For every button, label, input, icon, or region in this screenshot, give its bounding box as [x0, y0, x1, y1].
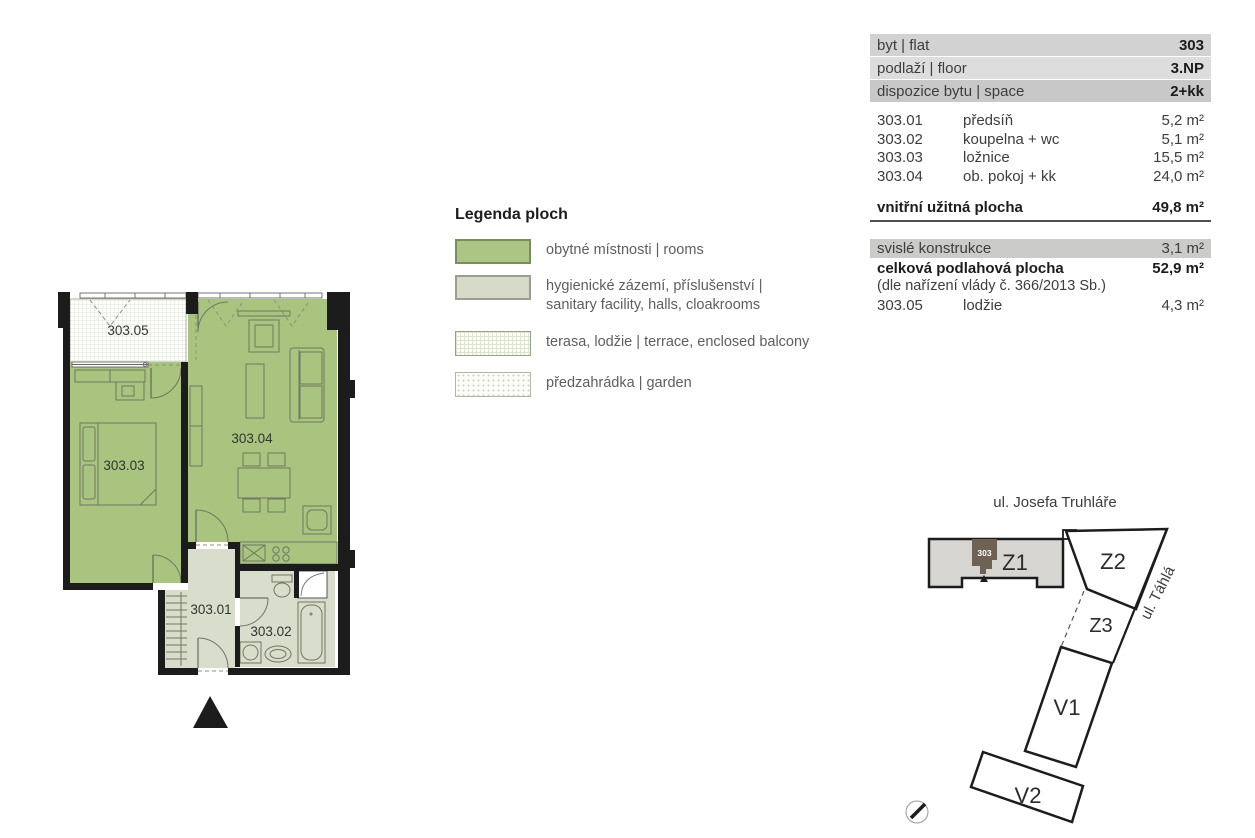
room-row: 303.04 ob. pokoj + kk 24,0 m²	[870, 168, 1211, 187]
row-vertical-constructions: svislé konstrukce 3,1 m²	[870, 239, 1211, 258]
row-floor: podlaží | floor 3.NP	[870, 57, 1211, 79]
floor-number: 3.NP	[1171, 60, 1204, 77]
north-arrow-icon	[193, 696, 228, 728]
floor-plan: 303.05 303.04 303.03 303.01 303.02	[50, 280, 370, 750]
legend-item-rooms: obytné místnosti | rooms	[455, 239, 845, 264]
layout-value: 2+kk	[1170, 83, 1204, 100]
flat-number: 303	[1179, 37, 1204, 54]
secondary-area-section: svislé konstrukce 3,1 m² celková podlaho…	[870, 239, 1211, 314]
building-z1: 303 Z1	[929, 530, 1076, 587]
legend: Legenda ploch obytné místnosti | rooms h…	[455, 206, 845, 408]
building-z1-label: Z1	[1002, 550, 1028, 575]
building-v2-label: V2	[1015, 783, 1042, 808]
building-v1: V1	[1025, 647, 1112, 767]
unit-303-label: 303	[977, 548, 991, 558]
room-row: 303.02 koupelna + wc 5,1 m²	[870, 131, 1211, 150]
label-303-02: 303.02	[250, 624, 291, 639]
label-303-03: 303.03	[103, 458, 144, 473]
legend-item-sanitary: hygienické zázemí, příslušenství | sanit…	[455, 275, 845, 315]
legend-title: Legenda ploch	[455, 206, 845, 224]
row-total-floor-area: celková podlahová plocha 52,9 m²	[870, 258, 1211, 277]
room-row: 303.01 předsíň 5,2 m²	[870, 112, 1211, 131]
legend-item-terrace: terasa, lodžie | terrace, enclosed balco…	[455, 331, 845, 356]
room-row: 303.03 ložnice 15,5 m²	[870, 149, 1211, 168]
building-z2-label: Z2	[1100, 549, 1126, 574]
label-303-04: 303.04	[231, 431, 273, 446]
street-top-label: ul. Josefa Truhláře	[993, 494, 1116, 511]
label-303-05: 303.05	[107, 323, 148, 338]
room-stairs	[165, 590, 188, 668]
site-plan: ul. Josefa Truhláře 303 Z1 Z2 Z3 ul. Táh…	[900, 490, 1255, 838]
row-layout: dispozice bytu | space 2+kk	[870, 80, 1211, 102]
unit-info-panel: byt | flat 303 podlaží | floor 3.NP disp…	[870, 34, 1211, 314]
legend-item-garden: předzahrádka | garden	[455, 372, 845, 397]
row-internal-area-total: vnitřní užitná plocha 49,8 m²	[870, 195, 1211, 222]
building-v1-label: V1	[1054, 695, 1081, 720]
compass-icon	[906, 801, 928, 823]
swatch-terrace	[455, 331, 531, 356]
loggia-row: 303.05 lodžie 4,3 m²	[870, 296, 1211, 314]
building-z3-label: Z3	[1089, 615, 1112, 637]
swatch-sanitary	[455, 275, 531, 300]
row-flat: byt | flat 303	[870, 34, 1211, 56]
shaft	[298, 571, 327, 598]
swatch-garden	[455, 372, 531, 397]
regulation-note: (dle nařízení vlády č. 366/2013 Sb.)	[870, 277, 1211, 296]
label-303-01: 303.01	[190, 602, 231, 617]
room-area-list: 303.01 předsíň 5,2 m² 303.02 koupelna + …	[870, 112, 1211, 186]
swatch-rooms	[455, 239, 531, 264]
